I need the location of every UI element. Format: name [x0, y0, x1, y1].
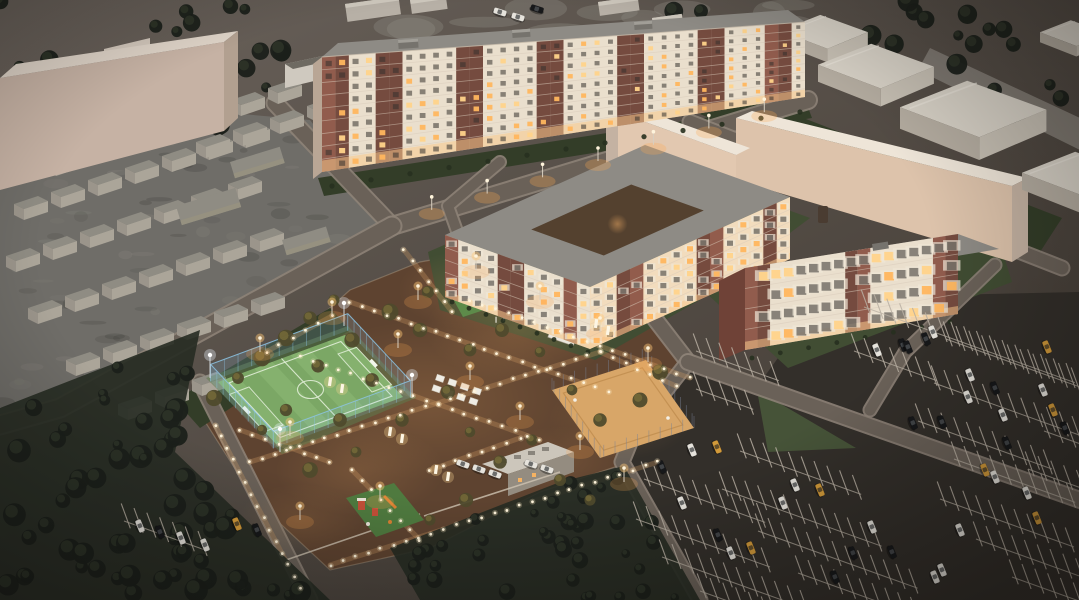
architectural-rendering: Aerial dusk 3D architectural rendering o…: [0, 0, 1079, 600]
render-canvas: Aerial dusk 3D architectural rendering o…: [0, 0, 1079, 600]
